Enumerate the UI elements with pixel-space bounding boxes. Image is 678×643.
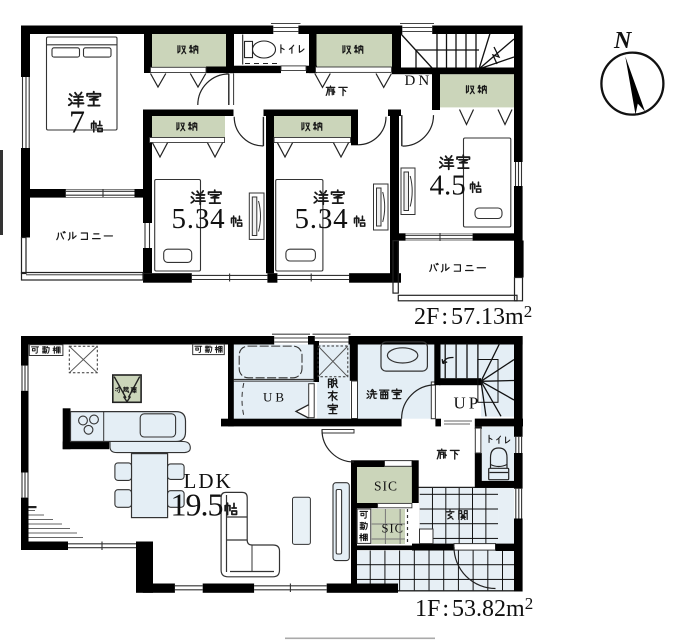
svg-text:DN: DN <box>405 73 433 89</box>
svg-text:UP: UP <box>454 394 482 413</box>
svg-text:UB: UB <box>263 390 287 405</box>
svg-text:1F:53.82m2: 1F:53.82m2 <box>415 594 533 622</box>
svg-text:5.34: 5.34 <box>295 203 349 235</box>
svg-text:7: 7 <box>69 104 85 140</box>
svg-text:SIC: SIC <box>382 522 404 536</box>
svg-text:N: N <box>613 28 633 54</box>
svg-text:SIC: SIC <box>374 479 398 494</box>
svg-text:2F:57.13m2: 2F:57.13m2 <box>414 302 532 330</box>
svg-text:5.34: 5.34 <box>172 203 226 235</box>
svg-text:4.5: 4.5 <box>430 170 466 202</box>
svg-text:19.5: 19.5 <box>171 487 223 523</box>
